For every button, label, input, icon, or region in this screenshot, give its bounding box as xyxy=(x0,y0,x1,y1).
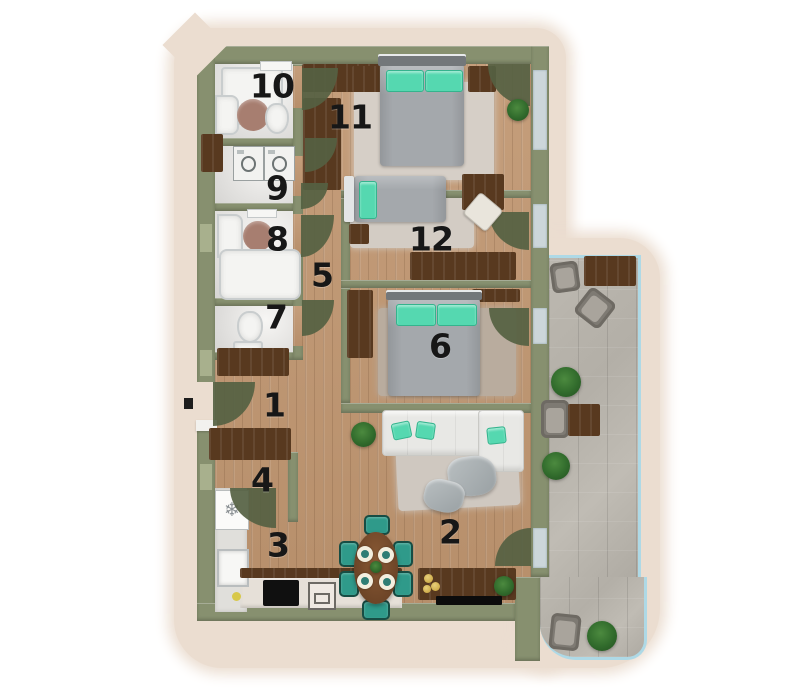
window-left-room-8 xyxy=(200,224,212,252)
cooktop xyxy=(263,580,299,606)
room-label-9: 9 xyxy=(266,169,288,208)
plant-living-room xyxy=(351,422,376,447)
gold-decor-a xyxy=(424,574,433,583)
pillow-room-6-a xyxy=(396,304,436,326)
window-room-12 xyxy=(533,204,547,248)
wall-top xyxy=(197,46,549,64)
room-label-8: 8 xyxy=(266,220,288,259)
plate-d xyxy=(379,574,395,590)
bathtub xyxy=(219,249,301,300)
pillow-room-11-b xyxy=(425,70,463,92)
wall-below-room-10 xyxy=(215,138,293,146)
plate-b xyxy=(378,547,394,563)
room-label-3: 3 xyxy=(267,526,289,565)
sofa-pillow-c xyxy=(486,426,507,445)
room-label-6: 6 xyxy=(429,327,451,366)
headboard-room-11 xyxy=(378,54,466,66)
room-label-11: 11 xyxy=(328,98,372,137)
room-label-2: 2 xyxy=(439,513,461,552)
terrace-plant-3 xyxy=(587,621,617,651)
terrace-armchair-4 xyxy=(548,613,582,652)
terrace-plant-2 xyxy=(542,452,570,480)
room-label-12: 12 xyxy=(409,220,453,259)
hall-wardrobe-bottom xyxy=(209,428,291,460)
wall-left xyxy=(197,46,215,621)
headboard-room-12 xyxy=(344,176,354,222)
nightstand-left-room-11 xyxy=(352,66,378,92)
room-label-5: 5 xyxy=(311,256,333,295)
terrace-armchair-1 xyxy=(549,260,581,294)
sofa-pillow-b xyxy=(415,421,436,440)
plant-tv-console xyxy=(494,576,514,596)
hall-wardrobe-top xyxy=(217,348,289,376)
wall-terrace-step xyxy=(515,577,540,661)
toilet-room-7 xyxy=(237,311,263,343)
window-left-hall xyxy=(200,350,212,376)
pillow-room-6-b xyxy=(437,304,477,326)
window-room-6 xyxy=(533,308,547,344)
nightstand-room-12 xyxy=(349,224,369,244)
lemon-decor xyxy=(232,592,241,601)
headboard-room-6 xyxy=(386,290,482,300)
wall-room-12-bottom xyxy=(341,280,531,288)
wardrobe-room-6 xyxy=(347,290,373,358)
gold-decor-c xyxy=(423,585,431,593)
shaft-cabinet xyxy=(201,134,223,172)
entrance-marker xyxy=(184,398,193,409)
room-label-1: 1 xyxy=(263,386,285,425)
floorplan-canvas: ❄ 1 2 3 4 5 6 7 8 9 10 11 12 xyxy=(0,0,812,688)
tv xyxy=(436,596,502,605)
oven-icon xyxy=(308,582,336,610)
window-room-11 xyxy=(533,70,547,150)
room-label-4: 4 xyxy=(251,461,273,500)
terrace-table-1 xyxy=(584,256,636,286)
terrace-armchair-3 xyxy=(541,400,569,438)
pillow-room-11-a xyxy=(386,70,424,92)
table-centerpiece xyxy=(370,561,382,573)
plate-c xyxy=(357,573,373,589)
gold-decor-b xyxy=(431,582,440,591)
washing-machine xyxy=(233,146,264,181)
terrace-table-2 xyxy=(568,404,600,436)
toilet-room-10 xyxy=(265,103,289,134)
towel-rack-room-8 xyxy=(247,209,277,218)
terrace-door-pane xyxy=(533,528,547,568)
wall-room-4-right xyxy=(288,452,298,522)
room-label-10: 10 xyxy=(250,67,294,106)
plant-room-11 xyxy=(507,99,529,121)
room-label-7: 7 xyxy=(265,298,287,337)
plate-a xyxy=(357,546,373,562)
pillow-room-12 xyxy=(359,181,377,219)
sink-room-10 xyxy=(215,95,239,135)
window-left-kitchen xyxy=(200,464,212,490)
terrace-plant-1 xyxy=(551,367,581,397)
